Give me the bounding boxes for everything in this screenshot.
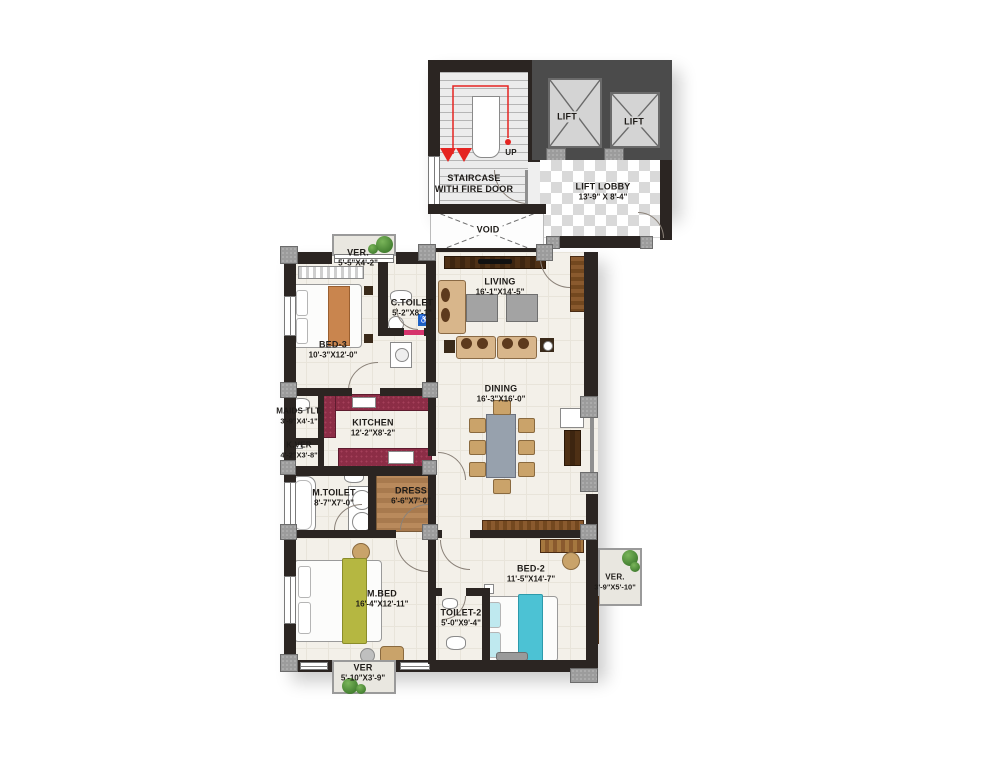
- dining-table: [486, 414, 516, 478]
- dining-chair: [469, 440, 486, 455]
- armchair-cushion: [441, 288, 450, 302]
- room-label-mtoilet: M.TOILET 8'-7"X7'-0": [312, 487, 355, 508]
- side-table: [444, 340, 455, 353]
- kitchen-sink: [388, 451, 414, 464]
- window: [300, 662, 328, 670]
- coffee-table: [506, 294, 538, 322]
- void-name: VOID: [474, 224, 503, 235]
- side-table-decor: [543, 341, 553, 351]
- mbed-name: M.BED: [367, 588, 397, 599]
- dining-chair: [469, 418, 486, 433]
- wall-segment: [428, 396, 436, 456]
- wall-segment: [552, 236, 644, 248]
- wall-segment: [428, 204, 546, 214]
- wall-segment: [428, 538, 436, 664]
- plant-icon: [356, 684, 366, 694]
- kitchen-counter-top: [330, 394, 430, 411]
- maids-dims: 3'-9"X4'-1": [280, 416, 317, 425]
- kver-dims: 4'-2"X3'-8": [280, 450, 317, 459]
- wall-segment: [470, 530, 586, 538]
- room-label-void: VOID: [474, 224, 503, 235]
- living-name: LIVING: [484, 276, 515, 287]
- room-label-bed3: BED-3 10'-3"X12'-0": [309, 339, 358, 360]
- ver-top-dims: 5'-5"X4'-2": [338, 259, 378, 269]
- bed3-dims: 10'-3"X12'-0": [309, 351, 358, 361]
- bed3-runner: [328, 286, 350, 346]
- ver-right-name: VER.: [605, 572, 624, 582]
- bed2-name: BED-2: [517, 563, 545, 574]
- wall-segment: [584, 252, 598, 402]
- ctoilet-dims: 5'-2"X8'-1": [392, 309, 432, 319]
- lift-lobby-dims: 13'-9" X 8'-4": [579, 193, 628, 203]
- dining-name: DINING: [485, 383, 518, 394]
- lift-lobby-name: LIFT LOBBY: [576, 181, 631, 192]
- room-label-lift-right: LIFT: [622, 116, 646, 127]
- washing-machine-door: [395, 348, 409, 362]
- up-label: UP: [505, 148, 517, 158]
- dress-name: DRESS: [395, 485, 427, 496]
- window: [284, 482, 296, 530]
- coffee-table: [466, 294, 498, 322]
- room-label-mbed: M.BED 16'-4"X12'-11": [356, 588, 409, 609]
- column: [280, 382, 297, 398]
- staircase-name: STAIRCASE: [447, 173, 500, 184]
- mbed-pillow: [298, 566, 311, 598]
- dining-chair: [518, 462, 535, 477]
- window: [400, 662, 430, 670]
- room-label-ctoilet: C.TOILET 5'-2"X8'-1": [391, 297, 433, 318]
- mbed-dims: 16'-4"X12'-11": [356, 600, 409, 610]
- bathtub-inner: [294, 480, 312, 530]
- bed3-name: BED-3: [319, 339, 347, 350]
- sofa-cushion: [518, 338, 529, 349]
- room-label-bed2: BED-2 11'-5"X14'-7": [507, 563, 555, 584]
- toilet2-name: TOILET-2: [441, 607, 482, 618]
- wall-segment: [482, 596, 490, 664]
- wall-segment: [368, 476, 376, 532]
- wall-segment: [436, 588, 442, 596]
- kitchen-name: KITCHEN: [352, 417, 393, 428]
- wall-segment: [428, 60, 532, 72]
- wall-segment: [284, 466, 436, 476]
- wall-segment: [466, 588, 490, 596]
- wall-segment: [428, 60, 440, 156]
- mbed-pillow: [298, 602, 311, 634]
- mtoilet-dims: 8'-7"X7'-0": [314, 499, 354, 509]
- column: [422, 524, 438, 540]
- staircase-name2: WITH FIRE DOOR: [435, 184, 513, 195]
- room-label-staircase: STAIRCASE WITH FIRE DOOR: [435, 173, 513, 196]
- main-entry-door: [570, 256, 585, 312]
- room-label-ver-top: VER. 5'-5"X4'-2": [338, 247, 378, 268]
- armchair-cushion: [441, 308, 450, 322]
- dining-chair: [518, 418, 535, 433]
- wall-segment: [586, 530, 598, 672]
- kitchen-counter-left: [322, 394, 336, 438]
- wall-segment: [426, 252, 436, 336]
- room-label-ver-right: VER. 3'-9"X5'-10": [594, 572, 636, 591]
- toilet2-dims: 5'-0"X9'-4": [441, 619, 481, 629]
- column: [280, 460, 296, 475]
- floor-plan: UP STAIRCASE WITH FIRE DOOR LIFT LIFT LI…: [0, 0, 1000, 771]
- wall-segment: [378, 328, 404, 336]
- room-label-kitchen: KITCHEN 12'-2"X8'-2": [351, 417, 395, 438]
- room-label-lift-left: LIFT: [555, 111, 579, 122]
- ver-bottom-name: VER: [353, 662, 372, 673]
- bed3-pillow: [296, 318, 308, 344]
- dining-chair: [518, 440, 535, 455]
- bed3-side-table: [364, 334, 373, 343]
- bed2-stool: [562, 552, 580, 570]
- wall-segment: [378, 262, 388, 332]
- window: [284, 296, 296, 336]
- dress-dims: 6'-6"X7'-0": [391, 497, 431, 507]
- ver-right-dims: 3'-9"X5'-10": [594, 582, 636, 591]
- sofa-cushion: [461, 338, 472, 349]
- dining-dims: 16'-3"X16'-0": [477, 395, 526, 405]
- dining-chair: [493, 479, 511, 494]
- wall-segment: [424, 328, 436, 336]
- column: [280, 524, 297, 540]
- column: [580, 472, 598, 492]
- fire-door-leaf: [525, 170, 528, 206]
- lift-right-name: LIFT: [622, 116, 646, 127]
- toilet2-wc: [446, 636, 466, 650]
- kitchen-dims: 12'-2"X8'-2": [351, 429, 395, 439]
- bed2-wardrobe-ext: [540, 539, 584, 553]
- kver-name: K.VER: [286, 440, 311, 450]
- window: [284, 576, 296, 624]
- bed3-pillow: [296, 290, 308, 316]
- plant-icon: [376, 236, 393, 253]
- room-label-ver-bottom: VER 5'-10"X3'-9": [341, 662, 385, 683]
- wall-segment: [284, 530, 396, 538]
- ver-bottom-dims: 5'-10"X3'-9": [341, 674, 385, 684]
- room-label-living: LIVING 16'-1"X14'-5": [476, 276, 525, 297]
- room-label-maids: MAIDS TLT. 3'-9"X4'-1": [276, 406, 321, 425]
- ctoilet-door-sill: [402, 330, 424, 335]
- room-label-dress: DRESS 6'-6"X7'-0": [391, 485, 431, 506]
- bed3-side-table: [364, 286, 373, 295]
- maids-name: MAIDS TLT.: [276, 406, 321, 416]
- sofa-cushion: [477, 338, 488, 349]
- plant-icon: [630, 562, 640, 572]
- tv-icon: [478, 259, 512, 264]
- column: [422, 460, 437, 475]
- column: [570, 668, 598, 683]
- ver-top-name: VER.: [347, 247, 369, 258]
- crockery-cabinet: [564, 430, 581, 466]
- column: [422, 382, 438, 398]
- room-label-toilet2: TOILET-2 5'-0"X9'-4": [441, 607, 482, 628]
- column: [280, 654, 298, 672]
- column: [418, 244, 436, 261]
- room-label-kver: K.VER 4'-2"X3'-8": [280, 440, 317, 459]
- mtoilet-name: M.TOILET: [312, 487, 355, 498]
- column: [536, 244, 553, 261]
- living-dims: 16'-1"X14'-5": [476, 288, 525, 298]
- up-text: UP: [505, 148, 517, 158]
- kitchen-counter-bottom: [338, 448, 432, 467]
- column: [280, 246, 298, 264]
- room-label-lift-lobby: LIFT LOBBY 13'-9" X 8'-4": [576, 181, 631, 202]
- bed2-dims: 11'-5"X14'-7": [507, 575, 555, 585]
- dining-chair: [469, 462, 486, 477]
- ctoilet-name: C.TOILET: [391, 297, 433, 308]
- room-label-dining: DINING 16'-3"X16'-0": [477, 383, 526, 404]
- column: [580, 396, 598, 418]
- lift-left-name: LIFT: [555, 111, 579, 122]
- kitchen-hob: [352, 397, 376, 408]
- column: [580, 524, 597, 540]
- sofa-cushion: [502, 338, 513, 349]
